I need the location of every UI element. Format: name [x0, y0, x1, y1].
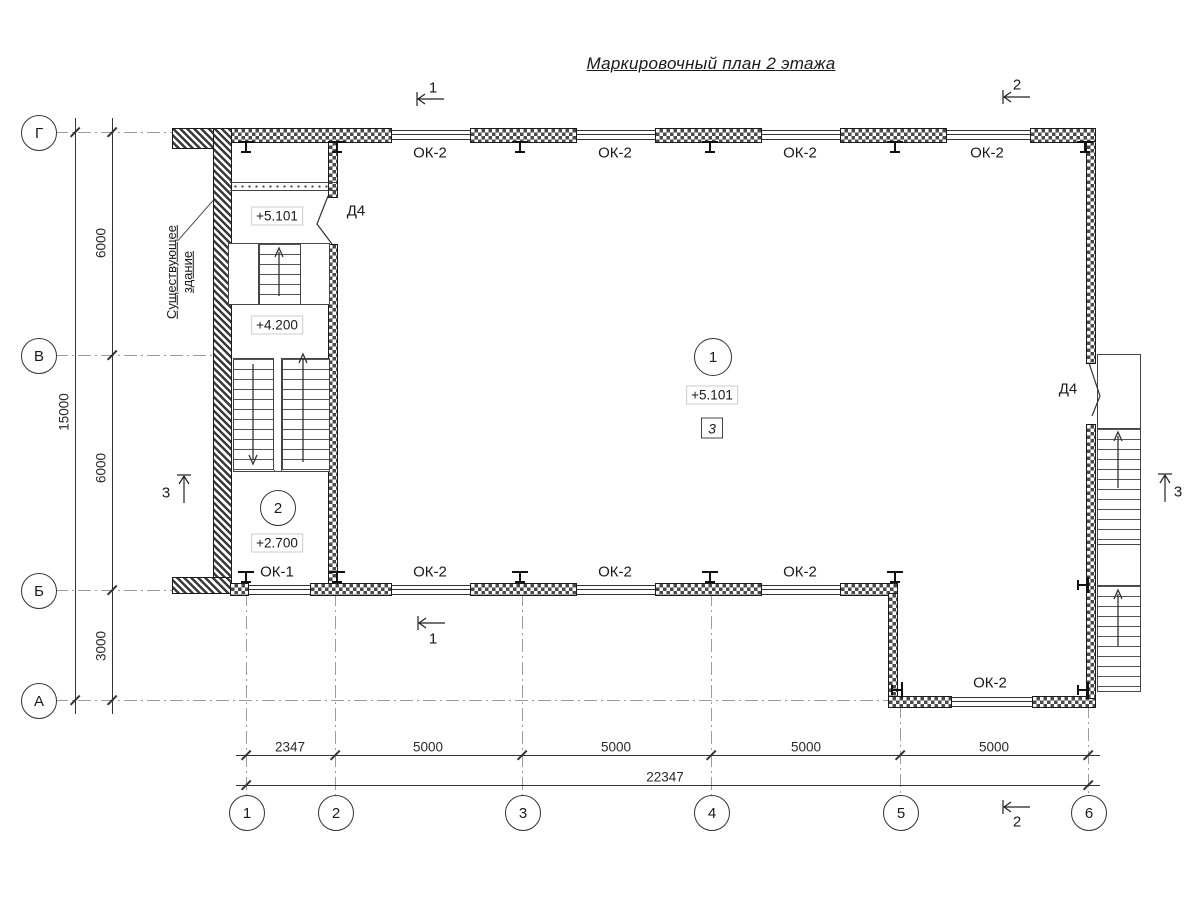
column-icon [887, 571, 903, 583]
axis-bubble-b: Б [21, 573, 57, 609]
wall-pier [310, 583, 392, 596]
axis-line-3 [522, 593, 523, 795]
existing-wall-bottom [172, 577, 232, 594]
dim-left-total: 15000 [57, 393, 72, 431]
window-label: ОК-2 [970, 145, 1004, 162]
column-icon [329, 141, 345, 153]
dim-bottom-5: 5000 [979, 740, 1009, 755]
section-number: 1 [429, 80, 437, 97]
column-icon [1077, 682, 1089, 698]
column-icon [512, 141, 528, 153]
dim-bottom-total: 22347 [646, 770, 684, 785]
axis-line-1 [246, 593, 247, 795]
column-icon [329, 571, 345, 583]
dim-line-bottom-total [236, 785, 1100, 786]
window-label: ОК-2 [598, 564, 632, 581]
stair-up-arrow [1112, 588, 1124, 648]
column-icon [1077, 141, 1093, 153]
section-number: 2 [1013, 814, 1021, 831]
room-tag-hall: 1 [694, 338, 732, 376]
dim-line-bottom-segments [236, 755, 1100, 756]
axis-line-4 [711, 593, 712, 795]
column-icon [1077, 577, 1089, 593]
window-label: ОК-1 [260, 564, 294, 581]
stair-down-arrow [247, 362, 259, 466]
section-arrow-1-bottom [413, 614, 447, 632]
column-icon [702, 571, 718, 583]
existing-wall-vertical [213, 128, 232, 594]
dim-bottom-2: 5000 [413, 740, 443, 755]
axis-line-5 [900, 705, 901, 795]
column-icon [887, 141, 903, 153]
dim-left-2: 6000 [94, 453, 109, 483]
axis-line-v [55, 355, 213, 356]
wall-pier [230, 583, 249, 596]
section-arrow-3-left [175, 471, 193, 505]
dim-bottom-4: 5000 [791, 740, 821, 755]
elevation-label: +5.101 [251, 207, 303, 226]
page-title: Маркировочный план 2 этажа [586, 54, 835, 74]
section-number: 2 [1013, 77, 1021, 94]
floor-plan-drawing: Маркировочный план 2 этажа 6000 6000 300… [0, 0, 1200, 900]
dim-bottom-3: 5000 [601, 740, 631, 755]
dim-left-1: 6000 [94, 228, 109, 258]
window-label: ОК-2 [783, 564, 817, 581]
partition-wall [230, 182, 336, 191]
axis-bubble-a: А [21, 683, 57, 719]
dim-line-left-segments [112, 118, 113, 714]
axis-bubble-5: 5 [883, 795, 919, 831]
axis-bubble-4: 4 [694, 795, 730, 831]
existing-building-label: Существующее здание [164, 225, 197, 319]
room-tag-stair: 2 [260, 490, 296, 526]
window-label: ОК-2 [783, 145, 817, 162]
window-label: ОК-2 [413, 145, 447, 162]
axis-bubble-1: 1 [229, 795, 265, 831]
window-label: ОК-2 [973, 675, 1007, 692]
stair-up-arrow [1112, 430, 1124, 490]
elevation-label: +2.700 [251, 534, 303, 553]
door-leaf-left [313, 193, 337, 247]
section-number: 1 [429, 631, 437, 648]
dim-left-3: 3000 [94, 631, 109, 661]
stair-side-wall [228, 243, 260, 305]
axis-line-a [55, 700, 888, 701]
dim-bottom-1: 2347 [275, 740, 305, 755]
note-box: 3 [701, 418, 723, 439]
wall-pier [230, 128, 392, 143]
window-label: ОК-2 [413, 564, 447, 581]
door-label: Д4 [1059, 381, 1078, 398]
column-icon [702, 141, 718, 153]
window-label: ОК-2 [598, 145, 632, 162]
section-number: 3 [162, 485, 170, 502]
wall-pier [470, 583, 577, 596]
stair-side-wall [300, 243, 330, 305]
axis-bubble-g: Г [21, 115, 57, 151]
axis-bubble-v: В [21, 338, 57, 374]
right-wall-upper [1086, 141, 1096, 364]
dim-line-left-total [75, 118, 76, 714]
door-label: Д4 [347, 203, 366, 220]
section-number: 3 [1174, 484, 1182, 501]
axis-line-2 [335, 593, 336, 795]
door-leaf-right [1085, 360, 1105, 418]
column-icon [238, 141, 254, 153]
elevation-label: +5.101 [686, 386, 738, 405]
section-arrow-3-right [1156, 470, 1174, 504]
wall-pier [655, 583, 762, 596]
axis-bubble-3: 3 [505, 795, 541, 831]
axis-bubble-2: 2 [318, 795, 354, 831]
column-icon [891, 682, 903, 698]
stair-up-arrow [297, 352, 309, 464]
axis-bubble-6: 6 [1071, 795, 1107, 831]
column-icon [512, 571, 528, 583]
right-wall-lower [1086, 424, 1096, 699]
elevation-label: +4.200 [251, 316, 303, 335]
stair-up-arrow [273, 246, 285, 298]
column-icon [238, 571, 254, 583]
